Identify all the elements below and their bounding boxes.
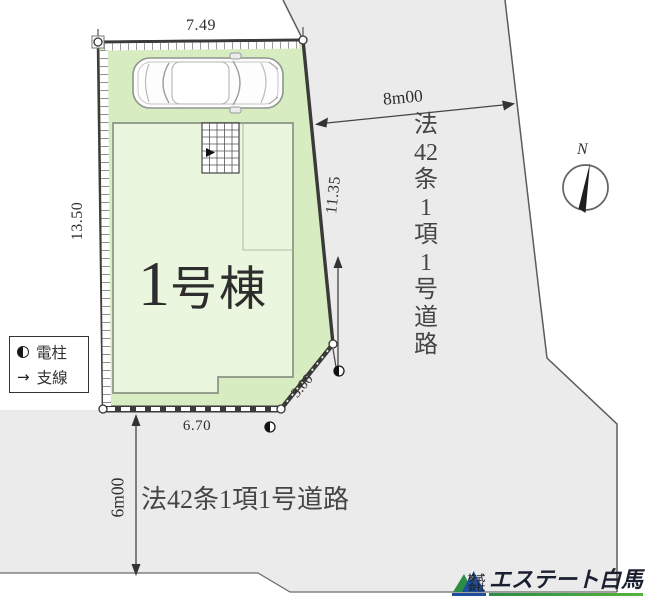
company-name: エステート白馬 xyxy=(489,569,643,591)
company-name-wrap: エステート白馬 xyxy=(489,569,643,596)
legend-pole-row: 電柱 xyxy=(17,341,88,363)
dimension-top: 7.49 xyxy=(180,17,222,35)
legend-wire-label: 支線 xyxy=(37,366,68,388)
south-road-name: 法42条1項1号道路 xyxy=(141,479,349,516)
site-plan: 7.49 13.50 11.35 3.00 6.70 8m00 6m00 法 4… xyxy=(0,0,650,599)
building-suffix: 号棟 xyxy=(170,267,268,314)
east-road-width-label: 8m00 xyxy=(382,85,424,109)
building-number: 1 xyxy=(138,252,170,316)
logo-underline xyxy=(489,593,643,596)
dimension-left: 13.50 xyxy=(69,193,87,249)
east-road-name: 法 42 条 1 項 1 号 道 路 xyxy=(402,112,450,360)
utility-pole-icon xyxy=(17,346,29,358)
dimension-bottom: 6.70 xyxy=(175,418,219,435)
south-road-width-label: 6m00 xyxy=(108,468,129,528)
legend-pole-label: 電柱 xyxy=(36,341,67,363)
stairs-icon xyxy=(202,123,239,173)
compass-north-label: N xyxy=(577,141,588,159)
wire-arrow-icon: → xyxy=(17,370,30,385)
legend-wire-row: → 支線 xyxy=(17,366,88,388)
company-prefix: 株式 会社 xyxy=(468,574,485,592)
legend-box: 電柱 → 支線 xyxy=(9,336,89,393)
building-label: 1 号棟 xyxy=(138,252,268,316)
company-logo: 株式 会社 エステート白馬 xyxy=(468,569,643,596)
car-icon xyxy=(133,53,283,113)
compass-icon xyxy=(563,163,608,213)
